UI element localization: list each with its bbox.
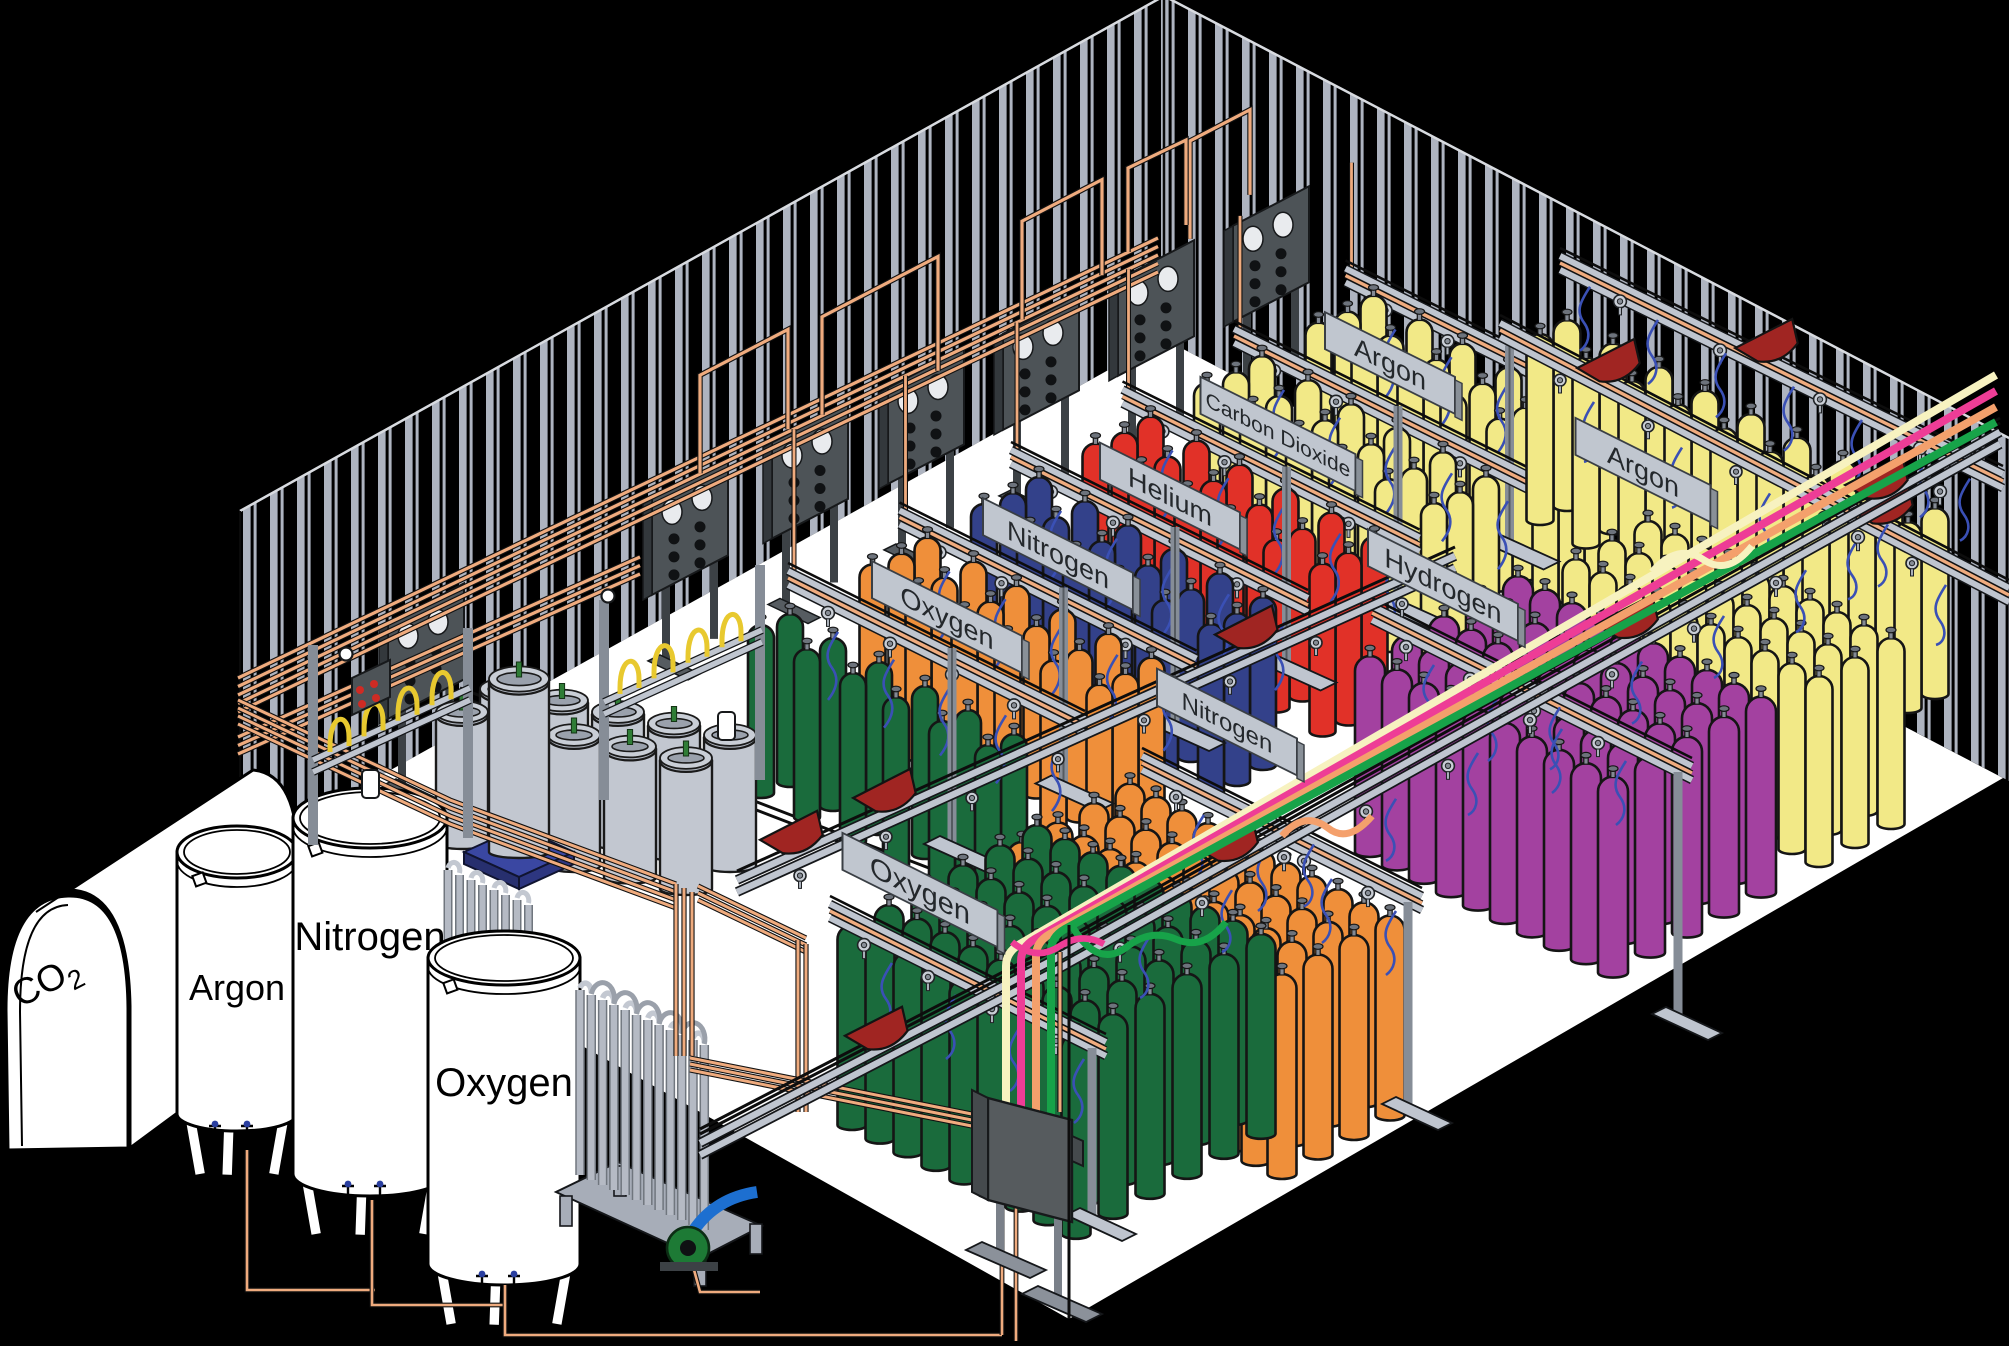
svg-text:Argon: Argon [189, 967, 285, 1008]
svg-text:Oxygen: Oxygen [435, 1061, 573, 1105]
svg-text:Nitrogen: Nitrogen [294, 915, 445, 959]
